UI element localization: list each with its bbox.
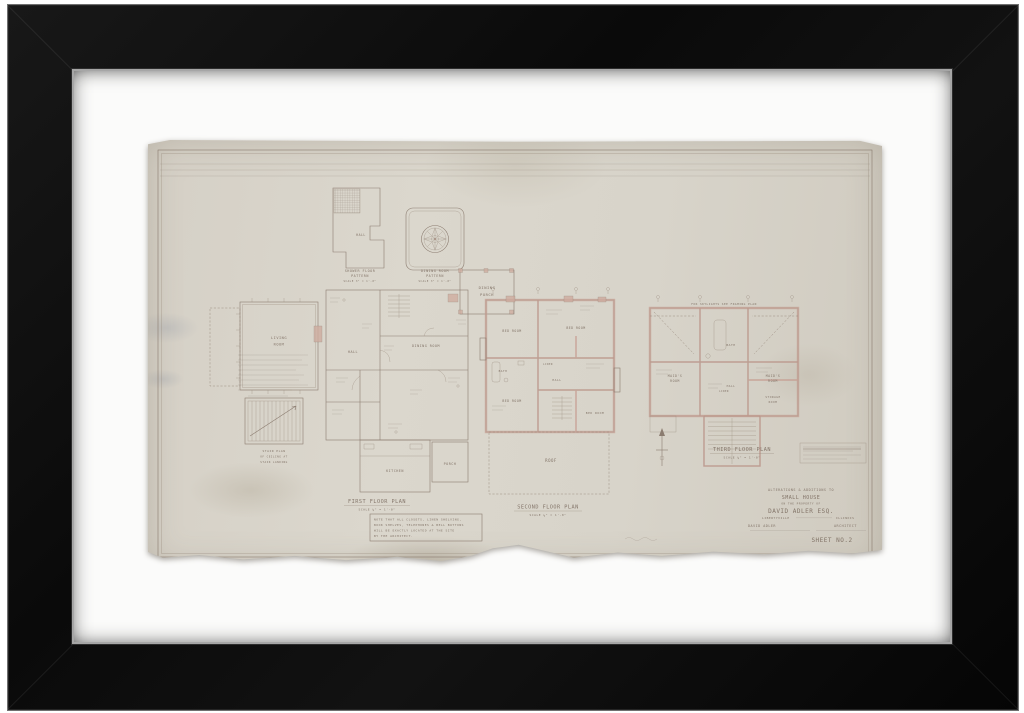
detail-scale: SCALE 3" = 1'-0" — [419, 279, 452, 283]
plan-scale: SCALE ¼" = 1'-0" — [724, 456, 761, 461]
state-label: ILLINOIS — [836, 516, 854, 520]
room-label-dining: DINING ROOM — [412, 344, 440, 348]
compass-medallion-icon — [422, 226, 449, 253]
drawing-sheet: HALL SHOWER FLOOR PATTERN SCALE 3" = 1'-… — [148, 140, 882, 567]
plan-scale: SCALE ¼" = 1'-0" — [359, 508, 396, 513]
mat-board: HALL SHOWER FLOOR PATTERN SCALE 3" = 1'-… — [72, 69, 952, 644]
city-label: LIBERTYVILLE — [762, 516, 790, 520]
room-label-maids2: ROOM — [768, 379, 778, 383]
plan-title: FIRST FLOOR PLAN — [348, 499, 406, 505]
detail-scale: SCALE 3" = 1'-0" — [344, 279, 377, 283]
photo-of-framed-drawing: HALL SHOWER FLOOR PATTERN SCALE 3" = 1'-… — [0, 0, 1024, 713]
frame-miter-seam — [7, 642, 75, 710]
room-label-storage2: ROOM — [769, 400, 778, 404]
sheet-border — [158, 150, 872, 557]
room-label-maids: MAID'S — [668, 374, 683, 378]
title-line1: ALTERATIONS & ADDITIONS TO — [768, 488, 834, 492]
frame-miter-seam — [7, 5, 75, 73]
room-label-living: LIVING — [271, 336, 287, 340]
room-label-dining-porch2: PORCH — [480, 292, 494, 297]
pencil-note-paragraph — [238, 355, 308, 396]
dining-pattern-detail: DINING ROOM PATTERN SCALE 3" = 1'-0" — [406, 208, 464, 283]
room-label-bedroom: BED ROOM — [502, 399, 521, 403]
stair-ceiling-detail: STAIR PLAN OF CEILING AT STAIR LANDING — [245, 398, 303, 464]
first-floor-plan: LIVING ROOM HALL DINING ROOM KITCHEN — [210, 290, 468, 492]
sheet-number: SHEET NO.2 — [811, 537, 852, 544]
detail-title: DINING ROOM — [421, 269, 449, 273]
detail-title: STAIR PLAN — [262, 449, 285, 453]
room-label-bath: BATH — [726, 343, 735, 347]
detail-title: SHOWER FLOOR — [345, 269, 376, 273]
second-floor-plan: BED ROOM BED ROOM BED ROOM BED ROOM BATH… — [480, 288, 620, 495]
room-label-bedroom: BED ROOM — [502, 329, 521, 333]
note-line: BY THE ARCHITECT. — [374, 534, 413, 538]
plan-title: THIRD FLOOR PLAN — [713, 447, 771, 453]
third-floor-plan: FOR SKYLIGHTS SEE FRAMING PLAN MAID'S RO… — [650, 296, 798, 467]
third-floor-title: THIRD FLOOR PLAN SCALE ¼" = 1'-0" — [710, 447, 774, 461]
pencil-inscription — [625, 538, 657, 541]
title-block: ALTERATIONS & ADDITIONS TO SMALL HOUSE O… — [748, 488, 866, 544]
framing-note: FOR SKYLIGHTS SEE FRAMING PLAN — [691, 302, 757, 306]
room-label-hall: HALL — [348, 350, 358, 354]
plan-scale: SCALE ¼" = 1'-0" — [530, 513, 567, 518]
room-label-kitchen: KITCHEN — [386, 469, 404, 473]
title-line3: ON THE PROPERTY OF — [781, 502, 820, 506]
plan-title: SECOND FLOOR PLAN — [517, 505, 579, 511]
room-label-hall: HALL — [552, 378, 561, 382]
note-line: WILL BE EXACTLY LOCATED AT THE SITE — [374, 529, 455, 533]
title-line2: SMALL HOUSE — [782, 495, 821, 501]
shower-floor-detail: HALL SHOWER FLOOR PATTERN SCALE 3" = 1'-… — [333, 188, 384, 283]
frame-miter-seam — [951, 5, 1019, 73]
dining-porch: DINING PORCH — [459, 269, 515, 315]
picture-frame: HALL SHOWER FLOOR PATTERN SCALE 3" = 1'-… — [8, 5, 1018, 710]
room-label-bedroom: BED ROOM — [586, 411, 604, 415]
room-label-hall: HALL — [727, 384, 736, 388]
room-label-linen: LINEN — [543, 363, 553, 366]
drawing-sheet-wrap: HALL SHOWER FLOOR PATTERN SCALE 3" = 1'-… — [148, 140, 882, 567]
room-label-living2: ROOM — [274, 343, 285, 347]
north-arrow-icon — [656, 428, 668, 466]
note-line: NOTE THAT ALL CLOSETS, LINEN SHELVING, — [374, 518, 462, 522]
room-label-maids: MAID'S — [766, 374, 781, 378]
room-label-porch: PORCH — [444, 462, 457, 466]
blueprint-linework: HALL SHOWER FLOOR PATTERN SCALE 3" = 1'-… — [148, 140, 882, 567]
room-label-maids2: ROOM — [670, 379, 680, 383]
first-floor-title: FIRST FLOOR PLAN SCALE ¼" = 1'-0" — [344, 499, 410, 513]
room-label-roof: ROOF — [545, 458, 557, 463]
detail-title2: PATTERN — [426, 274, 444, 278]
architect-name: DAVID ADLER — [748, 524, 776, 528]
frame-miter-seam — [951, 642, 1019, 710]
note-line: BOOK SHELVES, TELEPHONES & BELL BUTTONS — [374, 523, 464, 527]
room-label-hall-detail: HALL — [356, 233, 366, 237]
room-label-storage: STORAGE — [765, 395, 780, 399]
detail-title2: PATTERN — [351, 274, 369, 278]
architect-title: ARCHITECT — [834, 524, 857, 528]
room-label-bedroom: BED ROOM — [566, 326, 585, 330]
detail-line2: OF CEILING AT — [260, 455, 288, 459]
general-note-box: NOTE THAT ALL CLOSETS, LINEN SHELVING, B… — [370, 514, 482, 541]
owner-name: DAVID ADLER ESQ. — [768, 508, 834, 515]
second-floor-title: SECOND FLOOR PLAN SCALE ¼" = 1'-0" — [514, 505, 582, 519]
room-label-linen: LINEN — [719, 390, 729, 393]
small-note-block — [800, 443, 866, 463]
room-label-dining-porch: DINING — [479, 285, 496, 290]
room-label-bath: BATH — [499, 369, 508, 373]
detail-line3: STAIR LANDING — [260, 460, 288, 464]
